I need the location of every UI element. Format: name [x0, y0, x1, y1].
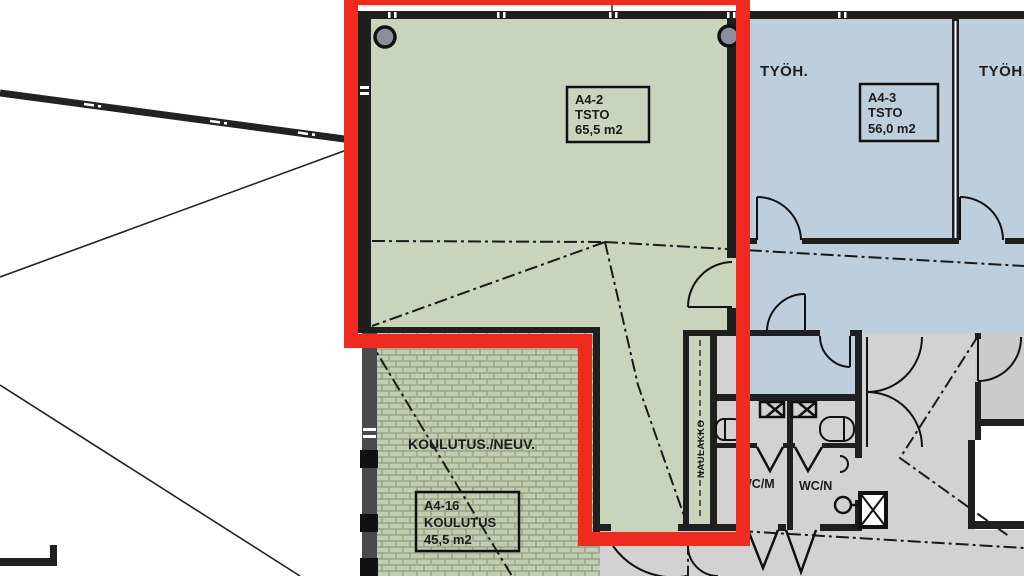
wc-lobby-blue-fill: [737, 333, 860, 395]
room-a4-3-area: 56,0 m2: [868, 121, 916, 136]
room-a4-2-area: 65,5 m2: [575, 122, 623, 137]
highlight-top: [344, 0, 750, 5]
room-a4-2-type: TSTO: [575, 107, 609, 122]
room-a4-2-fill: [358, 11, 740, 333]
wc-n-label: WC/N: [799, 479, 832, 493]
exterior-wall-stub-bottom-left: [0, 558, 57, 566]
highlight-mid-vertical: [578, 334, 592, 546]
room-a4-16-area: 45,5 m2: [424, 532, 472, 547]
room-a4-3-type: TSTO: [868, 105, 902, 120]
room-a4-16-id: A4-16: [424, 498, 459, 513]
tyoh-left-label: TYÖH.: [760, 63, 808, 80]
room-a4-3-id: A4-3: [868, 90, 896, 105]
floorplan-svg: A4-2 TSTO 65,5 m2 A4-3 TSTO 56,0 m2 A4-1…: [0, 0, 1024, 576]
exterior-wall-stub-bottom-left-end: [50, 545, 57, 566]
koulutus-neuv-label: KOULUTUS./NEUV.: [408, 436, 535, 452]
right-room-fill: [975, 333, 1024, 425]
naulakko-label: NAULAKKO: [696, 420, 707, 478]
room-a4-2-id: A4-2: [575, 92, 603, 107]
floorplan-screenshot: A4-2 TSTO 65,5 m2 A4-3 TSTO 56,0 m2 A4-1…: [0, 0, 1024, 576]
right-room-white-fill: [975, 425, 1024, 521]
highlight-mid-horizontal: [344, 334, 592, 348]
bottom-corridor-fill: [712, 530, 1024, 576]
highlight-left: [344, 0, 358, 348]
room-a4-16-type: KOULUTUS: [424, 515, 497, 530]
highlight-bottom: [578, 532, 750, 546]
highlight-right: [736, 0, 750, 546]
tyoh-right-label: TYÖH.: [979, 63, 1024, 80]
rooms-blue-fill: [737, 11, 1024, 333]
column-left: [375, 27, 395, 47]
room-a4-16-hatch-fill: [362, 333, 600, 576]
